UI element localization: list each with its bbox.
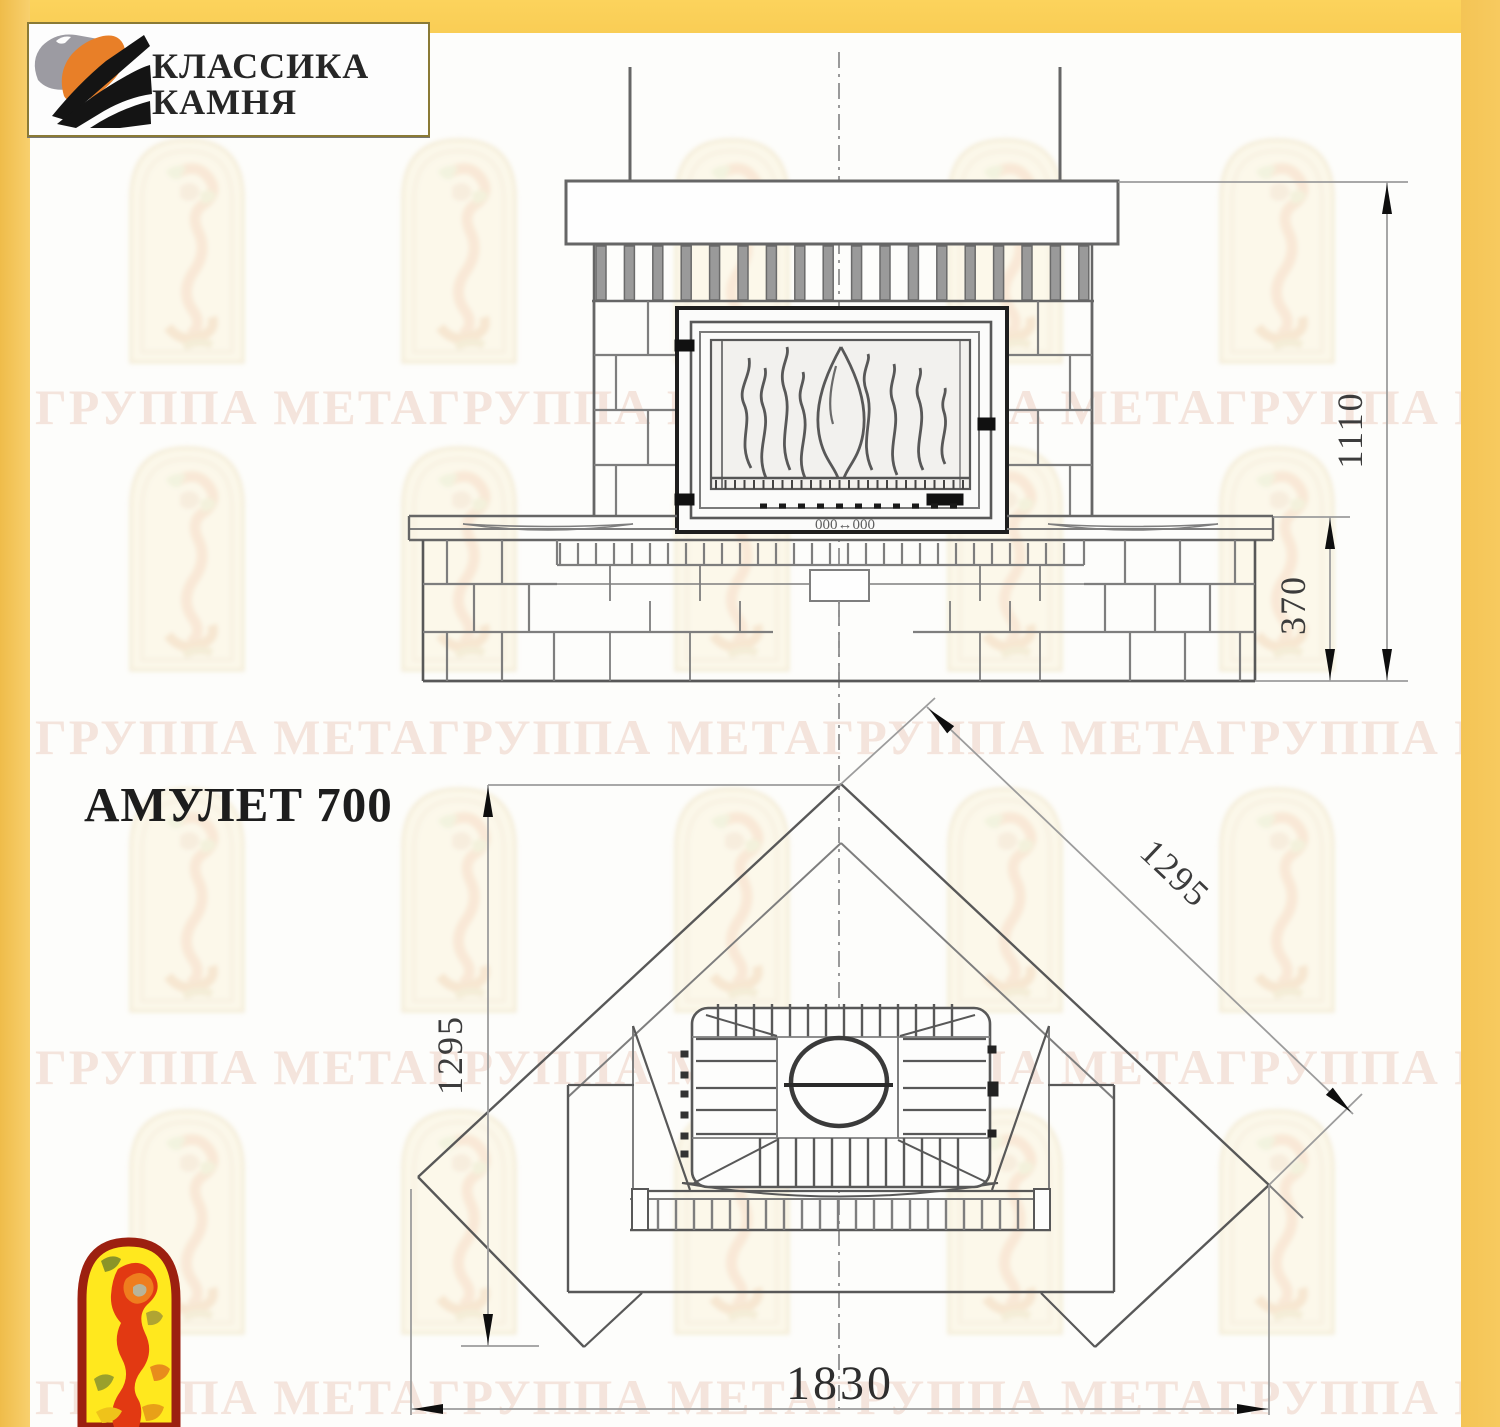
- svg-text:КЛАССИКА: КЛАССИКА: [152, 46, 369, 86]
- svg-text:370: 370: [1273, 575, 1313, 635]
- svg-text:КАМНЯ: КАМНЯ: [152, 82, 297, 122]
- svg-text:1830: 1830: [786, 1357, 894, 1410]
- svg-text:1295: 1295: [1132, 831, 1218, 915]
- svg-text:1295: 1295: [430, 1015, 470, 1095]
- svg-text:1110: 1110: [1330, 391, 1370, 468]
- svg-text:000↔000: 000↔000: [815, 517, 875, 533]
